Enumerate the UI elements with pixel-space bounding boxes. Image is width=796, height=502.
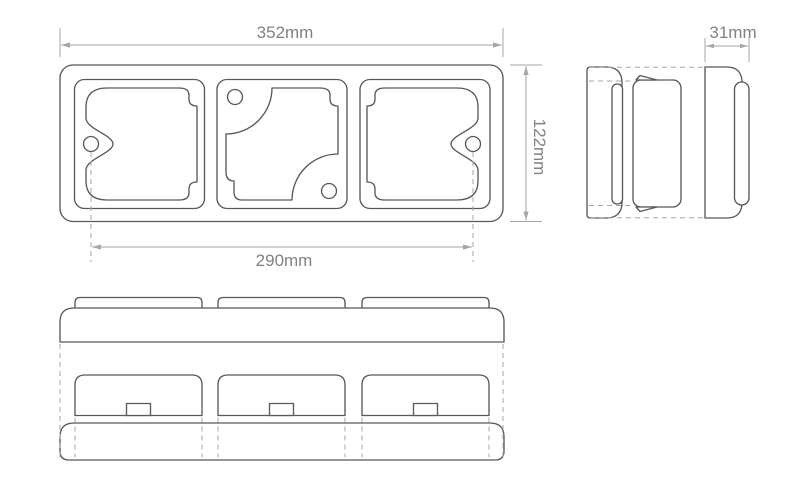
dim-352-arrow-left bbox=[61, 42, 70, 47]
front-view bbox=[60, 65, 503, 222]
dim-122-arrow-bottom bbox=[523, 212, 528, 221]
dim-31-arrow-right bbox=[740, 44, 748, 49]
bottom-lens-top-1 bbox=[75, 298, 202, 309]
side-lens-clip-top bbox=[636, 76, 657, 81]
module-3-screw-hole bbox=[466, 137, 481, 152]
dim-290-arrow-left bbox=[92, 244, 101, 249]
side-profile-lens-bump bbox=[735, 82, 750, 205]
dim-290-arrow-right bbox=[463, 244, 472, 249]
side-view bbox=[587, 67, 749, 218]
dim-122-arrow-top bbox=[523, 66, 528, 75]
dim-31-label: 31mm bbox=[709, 23, 756, 42]
dim-depth: 31mm bbox=[705, 23, 757, 62]
bottom-lens-top-2 bbox=[218, 298, 345, 309]
dim-290-label: 290mm bbox=[256, 251, 313, 270]
module-2-screw-hole-top bbox=[228, 90, 243, 105]
bottom-lens-tab-2 bbox=[270, 404, 294, 416]
bottom-lens-top-3 bbox=[362, 298, 489, 309]
module-2-screw-hole-bottom bbox=[322, 184, 337, 199]
side-lens-body bbox=[633, 80, 681, 207]
dim-352-arrow-right bbox=[493, 42, 502, 47]
bottom-lens-tab-3 bbox=[414, 404, 438, 416]
bottom-housing-bar bbox=[60, 308, 504, 342]
dim-overall-height: 122mm bbox=[510, 65, 549, 222]
side-plate-edge bbox=[612, 84, 623, 204]
lamp-drawing-svg: 352mm 122mm 290mm bbox=[0, 0, 796, 502]
side-lens-clip-bottom bbox=[636, 207, 657, 212]
dim-122-label: 122mm bbox=[530, 119, 549, 176]
bottom-view bbox=[60, 298, 504, 461]
bottom-lens-tab-1 bbox=[127, 404, 151, 416]
bottom-base-bar bbox=[60, 423, 504, 460]
dim-352-label: 352mm bbox=[257, 23, 314, 42]
module-1-screw-hole bbox=[84, 137, 99, 152]
technical-drawing-canvas: 352mm 122mm 290mm bbox=[0, 0, 796, 502]
dim-overall-width: 352mm bbox=[60, 23, 503, 57]
dim-31-arrow-left bbox=[706, 44, 714, 49]
